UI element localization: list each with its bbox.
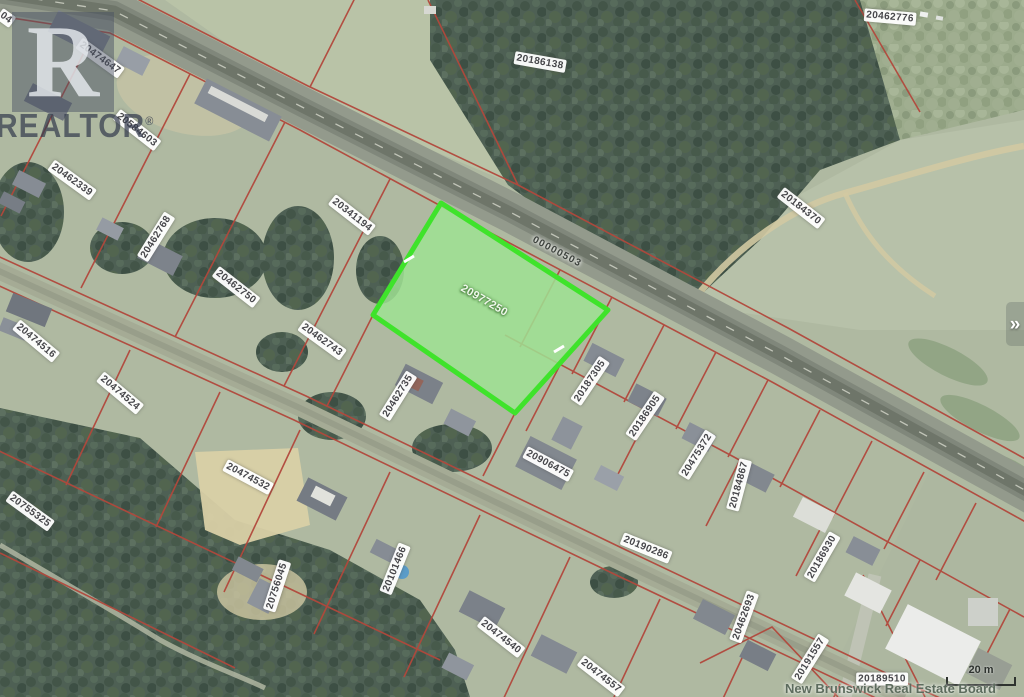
aerial-map-canvas[interactable] bbox=[0, 0, 1024, 697]
double-chevron-right-icon: » bbox=[1010, 315, 1021, 334]
attribution-text: New Brunswick Real Estate Board bbox=[785, 681, 996, 696]
expand-arrow-button[interactable]: » bbox=[1006, 302, 1024, 346]
scale-label: 20 m bbox=[968, 664, 993, 676]
map-viewport: 0420474647201861382046277620584603204623… bbox=[0, 0, 1024, 697]
